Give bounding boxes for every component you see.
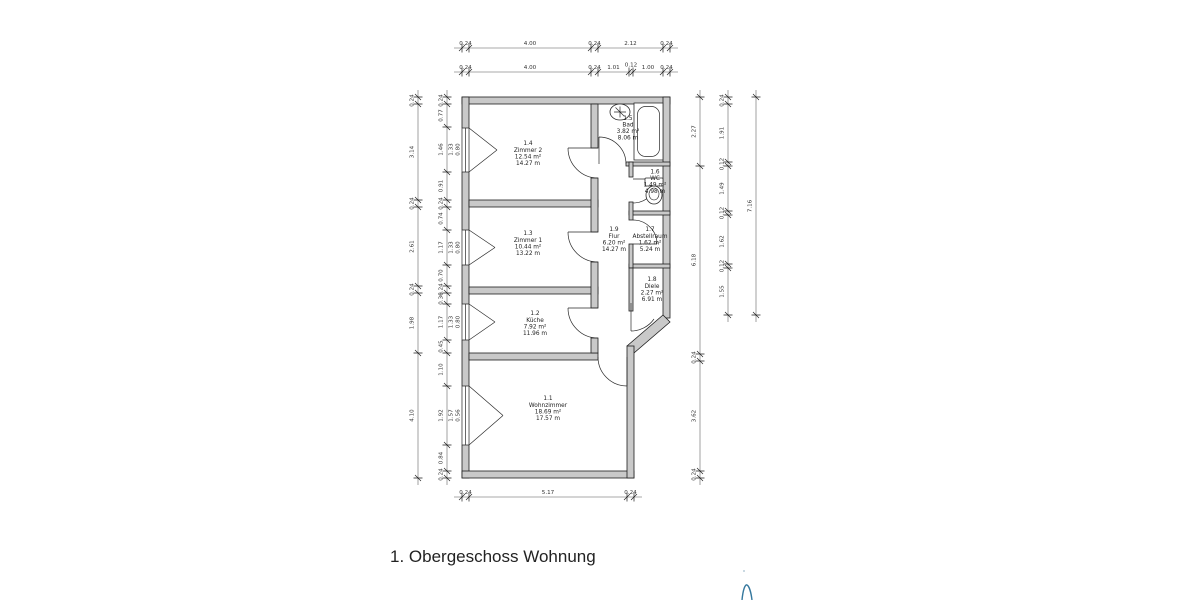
dim-label: 0.24 [588,65,601,71]
room-perimeter: 14.27 m [516,161,540,167]
room-name: Zimmer 2 [514,148,543,154]
dim-label: 1.98 [410,316,416,329]
scanned-floorplan-page: 0.24 4.00 0.24 2.12 0.24 0.24 4.00 0.24 … [0,0,1200,600]
dim-label: 0.36 [439,292,445,305]
door-zimmer1 [568,232,598,262]
dim-label: 3.14 [410,145,416,158]
window-dim-label: 1.33 [449,315,455,328]
door-wohnzimmer [598,357,627,386]
room-name: Küche [526,318,544,324]
wall-abstellraum-bottom [629,264,670,268]
dim-label: 2.12 [624,41,636,47]
room-label-diele: 1.8 Diele 2.27 m² 6.91 m [641,277,664,303]
room-area: 12.54 m² [515,154,541,161]
door-zimmer2 [568,148,598,178]
room-area: 6.20 m² [603,240,626,247]
room-number: 1.5 [623,116,633,122]
room-label-wohnzimmer: 1.1 Wohnzimmer 18.69 m² 17.57 m [529,396,568,422]
room-perimeter: 5.24 m [640,247,661,253]
room-label-zimmer1: 1.3 Zimmer 1 10.44 m² 13.22 m [514,231,543,257]
room-label-zimmer2: 1.4 Zimmer 2 12.54 m² 14.27 m [514,141,543,167]
dim-label: 0.24 [459,65,472,71]
room-name: Wohnzimmer [529,403,568,409]
window-dim-label: 0.80 [456,241,462,254]
room-area: 18.69 m² [535,409,561,416]
window-dim-label: 1.57 [449,409,455,422]
room-perimeter: 6.91 m [642,297,663,303]
room-perimeter: 8.06 m [618,136,639,142]
dim-label: 4.00 [524,41,537,47]
doors [568,137,657,386]
wall-corridor-left [591,338,598,353]
dim-chain-top-2: 0.24 4.00 0.24 1.01 0.12 1.00 0.24 [454,63,678,77]
dim-label: 0.24 [720,94,726,107]
dim-label: 1.62 [720,235,726,247]
dim-label: 1.91 [720,126,726,139]
dim-chain-right-outer: 7.16 [748,90,761,322]
dim-label: 0.12 [625,63,637,69]
window-kueche [462,304,495,340]
dim-label: 0.24 [692,351,698,364]
dim-label: 0.70 [439,269,445,282]
wall-corridor-left [591,104,598,148]
dim-label: 4.10 [410,409,416,422]
dim-label: 1.17 [439,315,445,328]
room-number: 1.6 [650,170,660,176]
dim-label: 1.00 [642,65,655,71]
wall-corridor-right [629,162,633,177]
room-number: 1.2 [530,311,540,317]
room-area: 1.49 m² [644,182,667,189]
dim-label: 1.17 [439,241,445,254]
dim-chain-bottom: 0.24 5.17 0.24 [454,490,642,502]
dim-label: 4.00 [524,65,537,71]
room-area: 7.92 m² [524,324,547,331]
dim-label: 0.24 [410,197,416,210]
room-area: 2.27 m² [641,290,664,297]
room-name: Zimmer 1 [514,238,543,244]
wall-right-lower [627,346,634,478]
dim-label: 0.24 [588,41,601,47]
dim-chain-top-1: 0.24 4.00 0.24 2.12 0.24 [454,41,678,53]
room-perimeter: 4.98 m [645,189,666,195]
dim-label: 0.24 [459,490,472,496]
wall-kueche-wohnzimmer [469,353,598,360]
wall-corridor-left [591,178,598,232]
room-name: Diele [645,284,660,290]
dim-label: 0.77 [439,109,445,122]
wall-zimmer1-kueche [469,287,598,294]
dim-label: 3.62 [692,410,698,422]
window-zimmer1 [462,230,495,265]
dim-label: 5.17 [542,490,555,496]
room-name: Flur [608,234,620,240]
dim-label: 0.24 [439,94,445,107]
handwritten-mark [742,570,752,600]
dim-label: 0.24 [624,490,637,496]
wall-wc-bottom [629,211,670,215]
dim-label: 1.55 [720,285,726,298]
page-title: 1. Obergeschoss Wohnung [390,547,596,566]
room-perimeter: 11.96 m [523,331,547,337]
room-number: 1.1 [543,396,553,402]
room-area: 3.82 m² [617,128,640,135]
dim-chain-left-outer: 0.24 3.14 0.24 2.61 0.24 1.98 4.10 [410,90,423,485]
room-area: 10.44 m² [515,244,541,251]
room-label-abstellraum: 1.7 Abstellraum 1.62 m² 5.24 m [633,227,668,253]
wall-zimmer2-zimmer1 [469,200,598,207]
wall-corridor-right [629,244,633,268]
dim-label: 0.24 [692,468,698,481]
dim-chain-right-inner: 2.27 6.18 0.24 3.62 0.24 [692,90,705,485]
room-perimeter: 13.22 m [516,251,540,257]
dim-label: 0.24 [439,468,445,481]
wall-corridor-right [629,202,633,220]
wall-bottom [462,471,634,478]
window-dim-label: 0.80 [456,143,462,156]
dim-label: 0.24 [660,41,673,47]
door-kueche [568,308,598,338]
dim-chain-right-middle: 0.24 1.91 0.12 1.49 0.12 1.62 0.12 1.55 [720,90,733,322]
room-number: 1.8 [647,277,657,283]
dim-label: 2.61 [410,240,416,253]
dim-label: 7.16 [748,199,754,212]
room-perimeter: 17.57 m [536,416,560,422]
dim-label: 0.24 [459,41,472,47]
dim-label: 0.24 [660,65,673,71]
dim-label: 1.46 [439,143,445,156]
dim-chain-left-inner: 0.24 0.77 1.46 0.91 0.24 0.74 1.17 0.70 … [439,90,462,485]
dim-label: 0.91 [439,179,445,192]
wall-corridor-left [591,262,598,308]
dim-label: 0.24 [439,197,445,210]
window-dim-label: 1.33 [449,143,455,156]
room-number: 1.4 [523,141,533,147]
dim-label: 0.74 [439,212,445,225]
room-name: WC [650,176,660,182]
window-dim-label: 1.33 [449,241,455,254]
floorplan-drawing: 0.24 4.00 0.24 2.12 0.24 0.24 4.00 0.24 … [0,0,1200,600]
room-number: 1.3 [523,231,533,237]
room-area: 1.62 m² [639,240,662,247]
room-name: Abstellraum [633,234,668,240]
window-dim-label: 0.80 [456,315,462,328]
room-number: 1.7 [645,227,655,233]
dim-label: 6.18 [692,253,698,266]
wall-right-upper [663,97,670,318]
window-wohnzimmer [462,386,503,445]
dim-label: 0.24 [410,94,416,107]
dim-label: 0.12 [720,260,726,272]
dim-label: 0.45 [439,340,445,353]
dim-label: 0.24 [410,283,416,296]
window-zimmer2 [462,128,497,172]
room-label-flur: 1.9 Flur 6.20 m² 14.27 m [602,227,626,253]
dim-label: 1.49 [720,182,726,195]
room-name: Bad [622,123,634,129]
dim-label: 0.12 [720,207,726,219]
dim-label: 1.01 [607,65,620,71]
dim-label: 0.12 [720,158,726,170]
window-dim-label: 0.56 [456,409,462,422]
room-number: 1.9 [609,227,619,233]
dim-label: 0.84 [439,451,445,464]
room-perimeter: 14.27 m [602,247,626,253]
dim-label: 1.10 [439,363,445,376]
room-label-kueche: 1.2 Küche 7.92 m² 11.96 m [523,311,547,337]
dim-label: 2.27 [692,125,698,138]
dim-label: 1.92 [439,409,445,421]
